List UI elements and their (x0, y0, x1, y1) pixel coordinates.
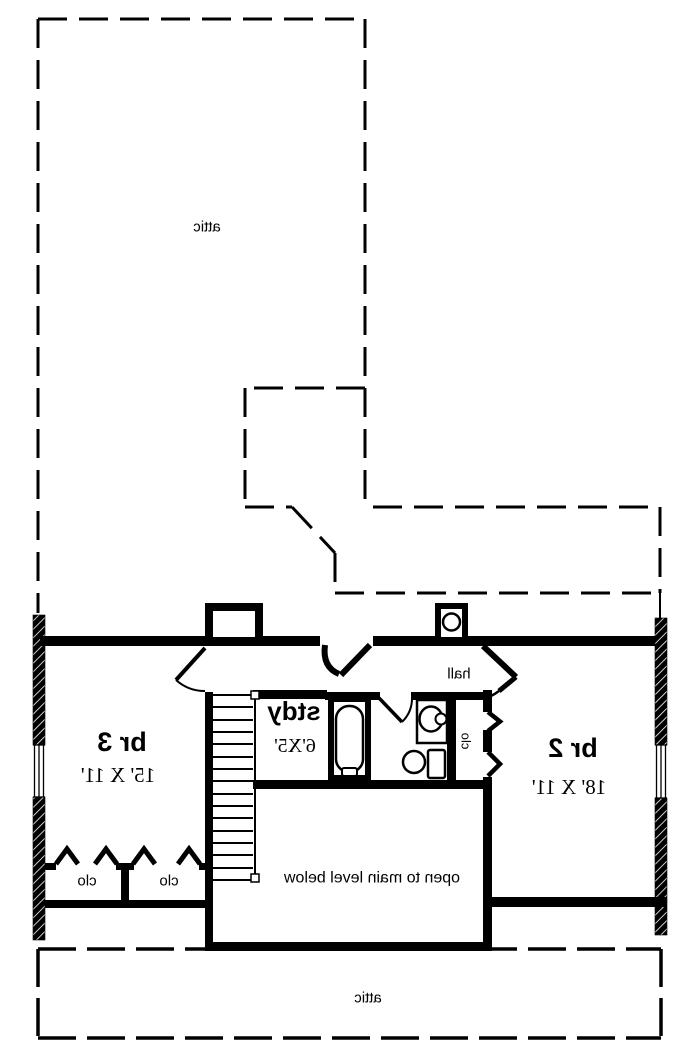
attic-bottom-label: attic (354, 990, 382, 1007)
attic-top-label: attic (193, 219, 221, 236)
flue-icon (443, 614, 460, 631)
tub-fixture (331, 699, 368, 778)
sink-fixture (417, 700, 447, 743)
bath-door (379, 698, 412, 722)
chimney-right (435, 603, 468, 644)
room-br3-dims: 15' X 11' (81, 763, 155, 787)
closet-left-label: clo (77, 873, 96, 890)
chimney-left (205, 603, 263, 644)
toilet-fixture (403, 750, 445, 778)
floor-plan-page: attic attic br 3 15' X 11' stdy 6'X5' br… (0, 0, 700, 1058)
br3-door (176, 648, 205, 691)
floor-plan: attic attic br 3 15' X 11' stdy 6'X5' br… (0, 0, 700, 1058)
roof-outline-dashed (38, 19, 660, 613)
hall-label: hall (447, 666, 470, 683)
room-br2-label: br 2 (548, 733, 598, 763)
room-br3-label: br 3 (97, 727, 147, 757)
closet-right-label: clo (159, 873, 178, 890)
room-br2-dims: 18' X 11' (532, 775, 606, 799)
room-stdy-dims: 6'X5' (274, 735, 316, 757)
room-stdy-label: stdy (267, 696, 321, 726)
window-right (655, 745, 667, 798)
closet-door-chevrons (56, 849, 200, 864)
closet-bath-label: clo (459, 733, 474, 750)
window-left (33, 745, 45, 797)
open-below-label: open to main level below (284, 870, 461, 887)
stairs (213, 691, 259, 882)
attic-bottom-outline (38, 949, 661, 1038)
